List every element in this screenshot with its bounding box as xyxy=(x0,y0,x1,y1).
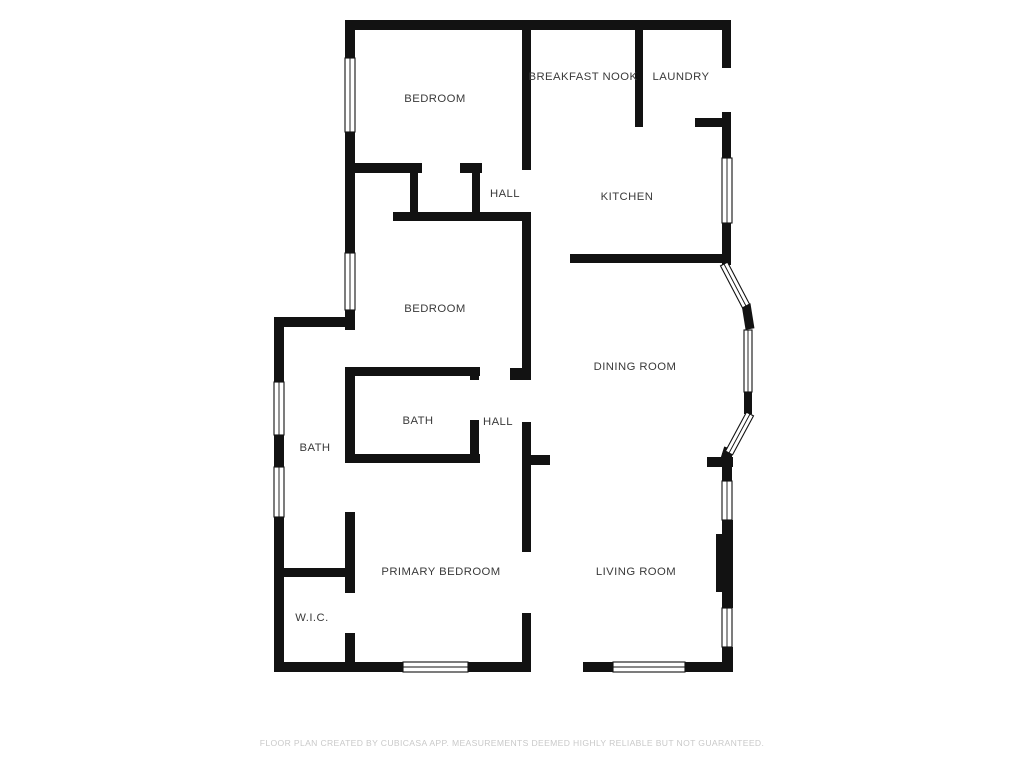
wall-segment xyxy=(470,367,479,380)
wall-segment xyxy=(274,317,284,382)
room-label-kitchen: KITCHEN xyxy=(601,191,654,203)
wall-segment xyxy=(707,457,733,467)
wall-segment xyxy=(274,317,346,327)
wall-segment xyxy=(472,168,480,214)
room-label-laundry: LAUNDRY xyxy=(653,71,710,83)
wall-segment xyxy=(522,20,531,170)
wall-segment xyxy=(274,517,284,672)
wall-segment xyxy=(410,168,418,214)
room-label-wic: W.I.C. xyxy=(295,612,328,624)
window-symbol xyxy=(721,262,750,308)
wall-segment xyxy=(744,392,752,414)
wall-segment xyxy=(522,212,531,380)
wall-segment xyxy=(345,310,355,330)
wall-segment xyxy=(345,132,355,253)
window-symbol xyxy=(722,158,732,223)
room-label-primary-bedroom: PRIMARY BEDROOM xyxy=(381,566,500,578)
room-label-bedroom-top: BEDROOM xyxy=(404,93,466,105)
wall-segment xyxy=(274,662,403,672)
wall-segment xyxy=(510,368,530,380)
wall-segment xyxy=(522,422,531,552)
wall-segment xyxy=(345,633,355,672)
window-symbol xyxy=(744,330,752,392)
wall-segment xyxy=(345,20,731,30)
wall-segment xyxy=(722,20,731,68)
wall-segment xyxy=(393,212,531,221)
wall-segment xyxy=(274,435,284,467)
window-symbol xyxy=(722,608,732,647)
window-symbol xyxy=(722,481,732,520)
wall-segment xyxy=(468,662,530,672)
wall-segment xyxy=(695,118,722,127)
room-label-hall-top: HALL xyxy=(490,188,520,200)
window-symbol xyxy=(403,662,468,672)
floorplan-canvas: BEDROOM BREAKFAST NOOK LAUNDRY HALL KITC… xyxy=(0,0,1024,768)
window-symbol xyxy=(345,253,355,310)
wall-segment xyxy=(345,454,480,463)
chimney-block xyxy=(716,534,723,592)
wall-segment xyxy=(583,662,613,672)
window-symbol xyxy=(345,58,355,132)
room-label-breakfast-nook: BREAKFAST NOOK xyxy=(528,71,637,83)
wall-segment xyxy=(345,512,355,593)
wall-segment xyxy=(722,647,733,672)
room-label-bath-middle: BATH xyxy=(402,415,433,427)
wall-segment xyxy=(570,254,731,263)
window-symbol xyxy=(726,412,754,455)
wall-segment xyxy=(522,613,531,672)
window-symbol xyxy=(274,382,284,435)
bay-wall-diagonal xyxy=(746,304,750,329)
room-label-living-room: LIVING ROOM xyxy=(596,566,676,578)
wall-segment xyxy=(345,367,355,463)
floorplan-svg: BEDROOM BREAKFAST NOOK LAUNDRY HALL KITC… xyxy=(0,0,1024,768)
footer-disclaimer: FLOOR PLAN CREATED BY CUBICASA APP. MEAS… xyxy=(260,738,764,748)
room-label-hall-middle: HALL xyxy=(483,416,513,428)
room-labels: BEDROOM BREAKFAST NOOK LAUNDRY HALL KITC… xyxy=(295,71,709,624)
room-label-dining-room: DINING ROOM xyxy=(594,361,677,373)
wall-segment xyxy=(722,112,731,160)
room-label-bath-left: BATH xyxy=(299,442,330,454)
wall-segment xyxy=(345,367,480,376)
room-label-bedroom-middle: BEDROOM xyxy=(404,303,466,315)
wall-segment xyxy=(345,20,355,58)
window-symbol xyxy=(274,467,284,517)
wall-segment xyxy=(522,455,550,465)
wall-segment xyxy=(274,568,350,577)
chimney-block xyxy=(722,520,733,608)
window-symbol xyxy=(613,662,685,672)
